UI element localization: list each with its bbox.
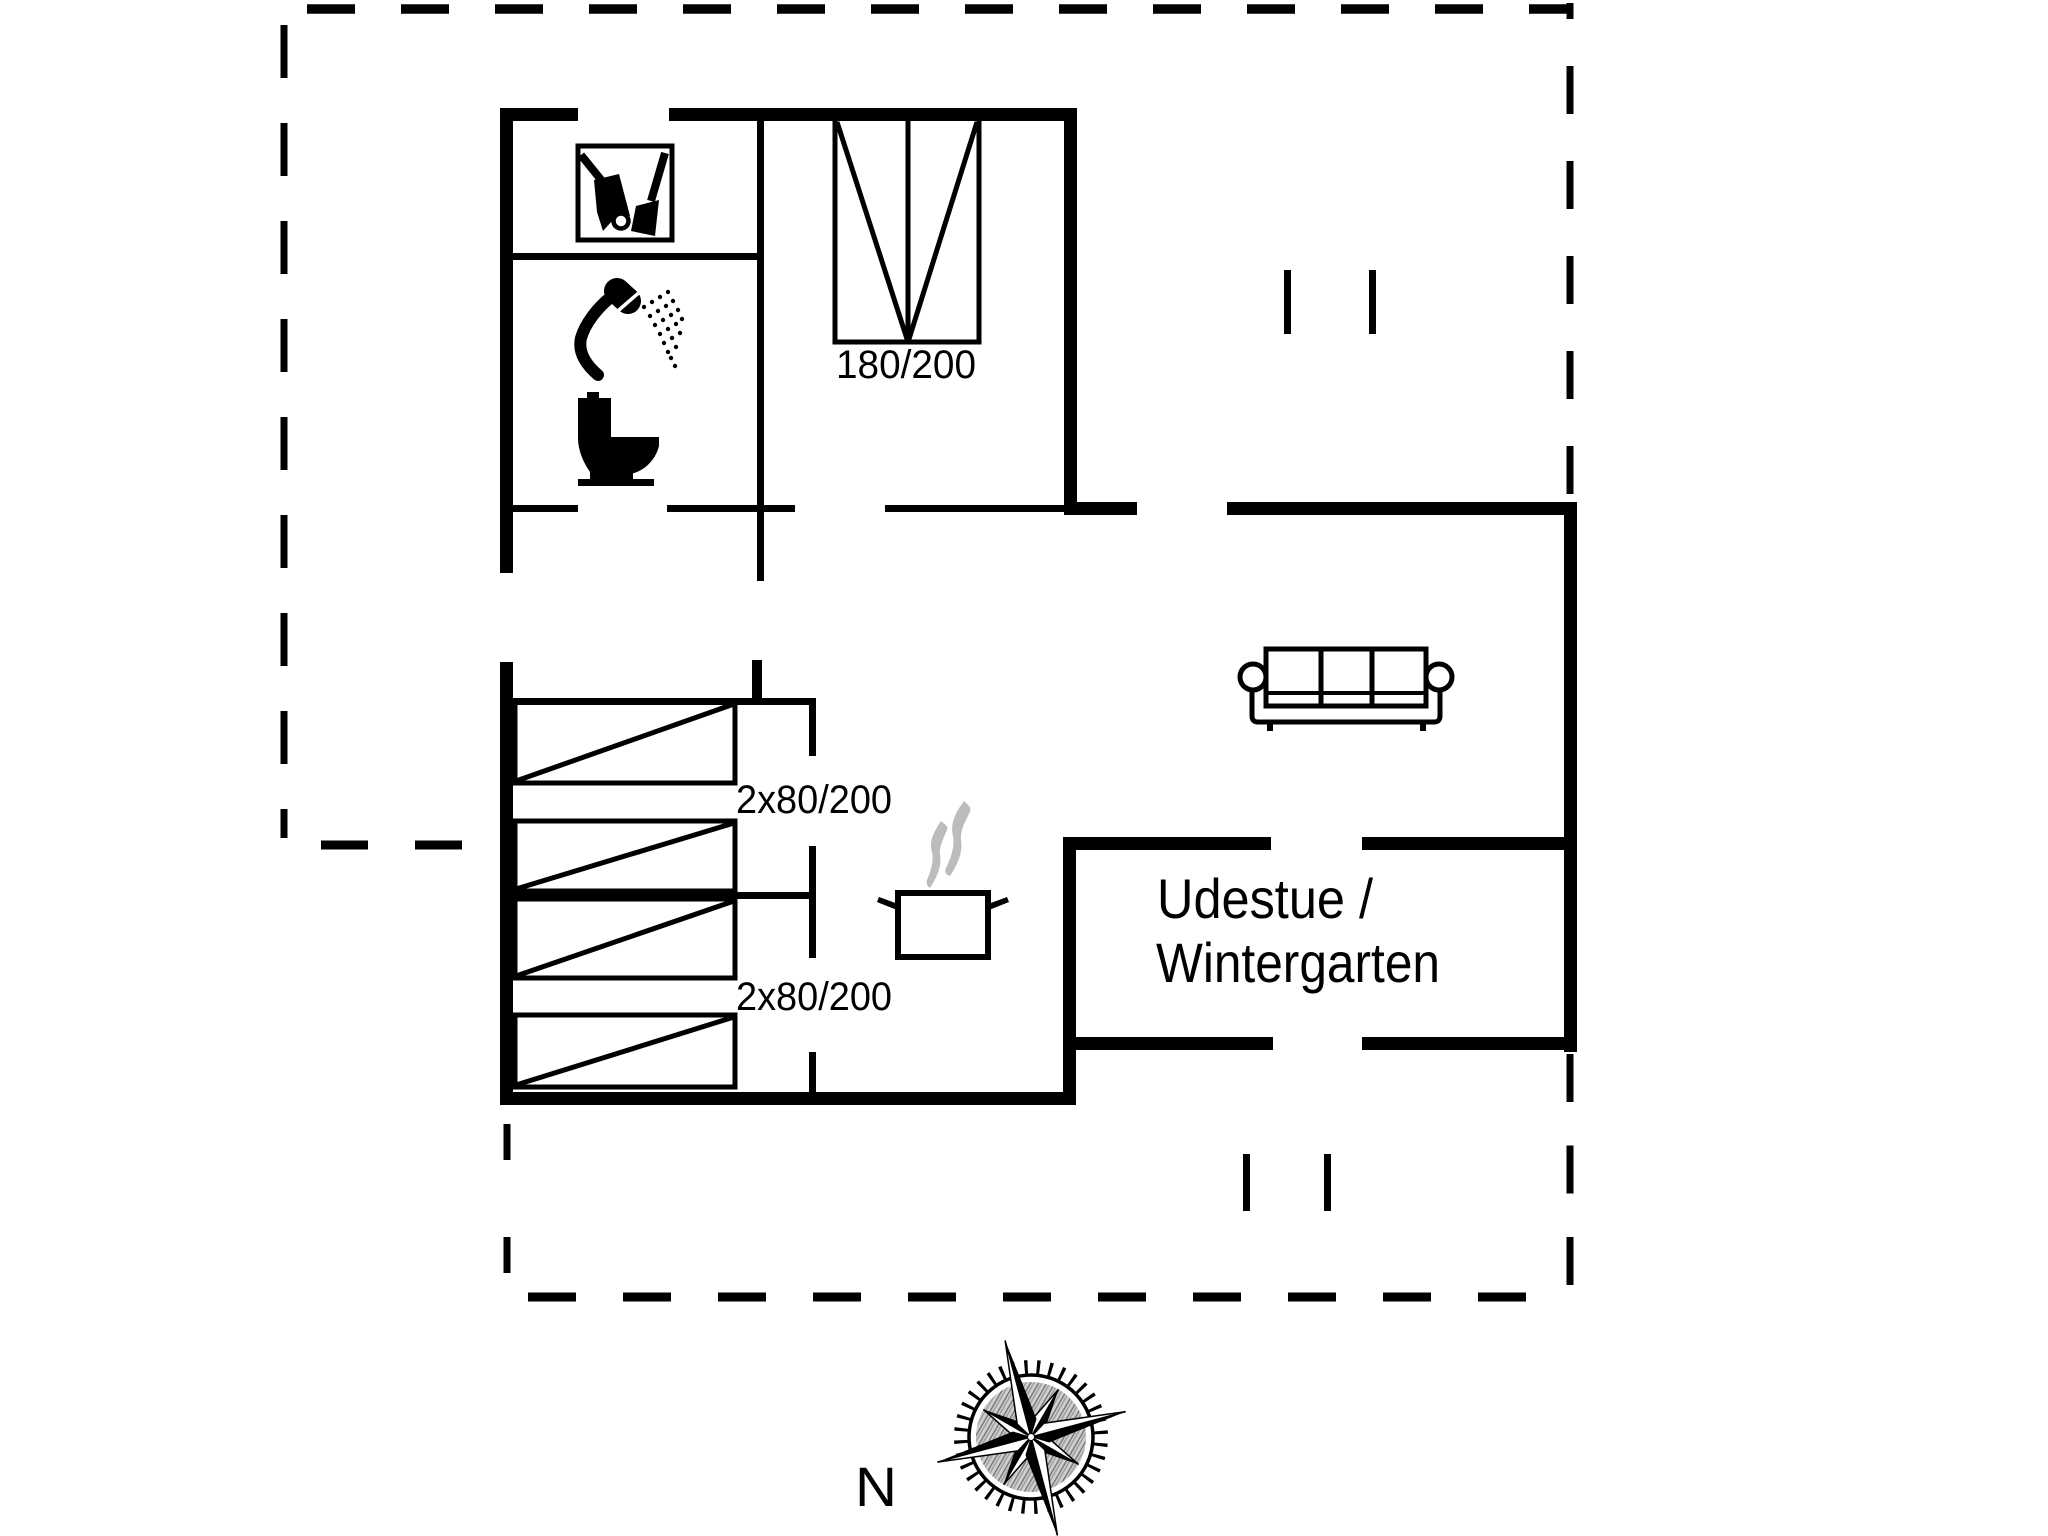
- svg-text:Wintergarten: Wintergarten: [1156, 931, 1440, 994]
- svg-text:2x80/200: 2x80/200: [736, 975, 892, 1019]
- svg-text:Udestue /: Udestue /: [1157, 867, 1373, 930]
- svg-text:2x80/200: 2x80/200: [736, 778, 892, 822]
- svg-text:180/200: 180/200: [836, 343, 976, 387]
- svg-text:N: N: [855, 1455, 897, 1518]
